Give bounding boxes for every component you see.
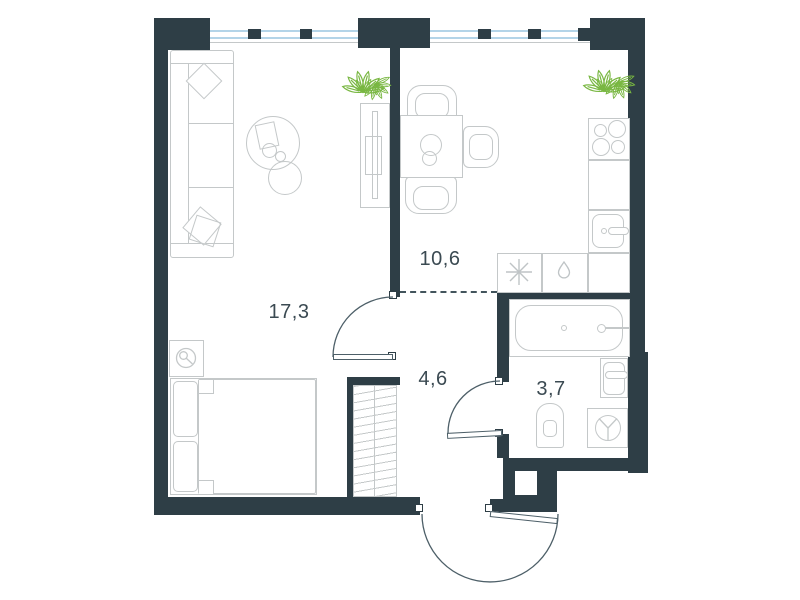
wardrobe-rail-line xyxy=(374,386,375,496)
wall-top-right-block xyxy=(590,18,645,50)
door-jamb xyxy=(495,377,503,385)
coffee-table-small xyxy=(268,161,302,195)
bathroom-area-label: 3,7 xyxy=(526,378,576,400)
window-kitchen-mullion xyxy=(478,29,491,39)
window-kitchen-mullion xyxy=(528,29,541,39)
bathroom-door-leaf xyxy=(447,430,502,439)
stove-burner xyxy=(592,138,610,156)
floor-plan: 17,3 10,6 4,6 3,7 xyxy=(0,0,800,600)
bed-pillow xyxy=(173,441,198,492)
blanket-fold xyxy=(199,480,214,494)
wall-bathroom-bottom xyxy=(503,458,638,471)
kitchen-counter-corner xyxy=(588,253,630,293)
wall-right-kitchen xyxy=(628,50,645,288)
nightstand xyxy=(169,340,204,377)
kitchen-area-label: 10,6 xyxy=(410,248,470,270)
wall-bathroom-left-lower xyxy=(497,434,509,458)
hallway-area-label: 4,6 xyxy=(408,368,458,390)
bed-pillow xyxy=(173,381,198,437)
wall-right-bathroom xyxy=(628,352,648,473)
washing-machine-drum xyxy=(595,415,621,441)
entrance-door-leaf xyxy=(490,511,558,524)
plant-living xyxy=(342,71,397,106)
wall-living-kitchen-divider xyxy=(390,44,400,297)
bathtub-faucet-pipe xyxy=(604,327,629,329)
sofa-cushion-line xyxy=(189,123,234,124)
toilet-cistern xyxy=(543,420,557,437)
window-living-mullion xyxy=(300,29,312,39)
duct-shaft-opening xyxy=(515,471,537,495)
kitchen-sink-drain xyxy=(601,228,607,234)
bathtub-drain xyxy=(561,325,567,331)
open-boundary-dashed-line xyxy=(400,291,497,293)
bathtub-faucet xyxy=(597,324,606,333)
wall-top-left-block xyxy=(154,18,210,50)
wall-bathroom-left-upper xyxy=(497,300,509,382)
window-living-glass xyxy=(210,30,358,32)
kitchen-counter xyxy=(588,160,630,210)
dining-chair-inner xyxy=(469,134,493,160)
wall-right-bathtub xyxy=(628,300,645,352)
stove-burner xyxy=(594,124,607,137)
stove-burner xyxy=(611,140,625,154)
kitchen-faucet xyxy=(608,227,629,235)
wall-left xyxy=(154,18,168,515)
cup xyxy=(275,151,286,162)
door-jamb xyxy=(415,504,423,512)
bathroom-faucet xyxy=(605,371,628,379)
stove-burner xyxy=(608,120,626,138)
window-kitchen-glass xyxy=(430,30,578,32)
door-jamb xyxy=(389,291,397,299)
living-room-area-label: 17,3 xyxy=(259,301,319,323)
appliance-dishwasher xyxy=(542,253,588,293)
window-living-mullion xyxy=(248,29,261,39)
wall-bottom xyxy=(154,497,420,515)
appliance-freezer xyxy=(497,253,542,293)
wardrobe xyxy=(353,385,397,497)
tv-bracket xyxy=(365,136,382,175)
living-room-door-arc xyxy=(333,297,393,357)
living-room-door-leaf xyxy=(333,354,393,360)
wall-wardrobe-top xyxy=(347,377,400,385)
sofa-back-line xyxy=(188,64,189,243)
window-kitchen-glass xyxy=(430,37,578,39)
entrance-door-arc xyxy=(422,514,558,582)
bed-blanket xyxy=(198,379,316,494)
dining-chair-inner xyxy=(413,186,449,210)
window-living-glass xyxy=(210,37,358,39)
blanket-fold xyxy=(199,380,214,394)
sofa-cushion-line xyxy=(189,187,234,188)
plate xyxy=(422,151,437,166)
wall-top-stub xyxy=(578,28,592,41)
